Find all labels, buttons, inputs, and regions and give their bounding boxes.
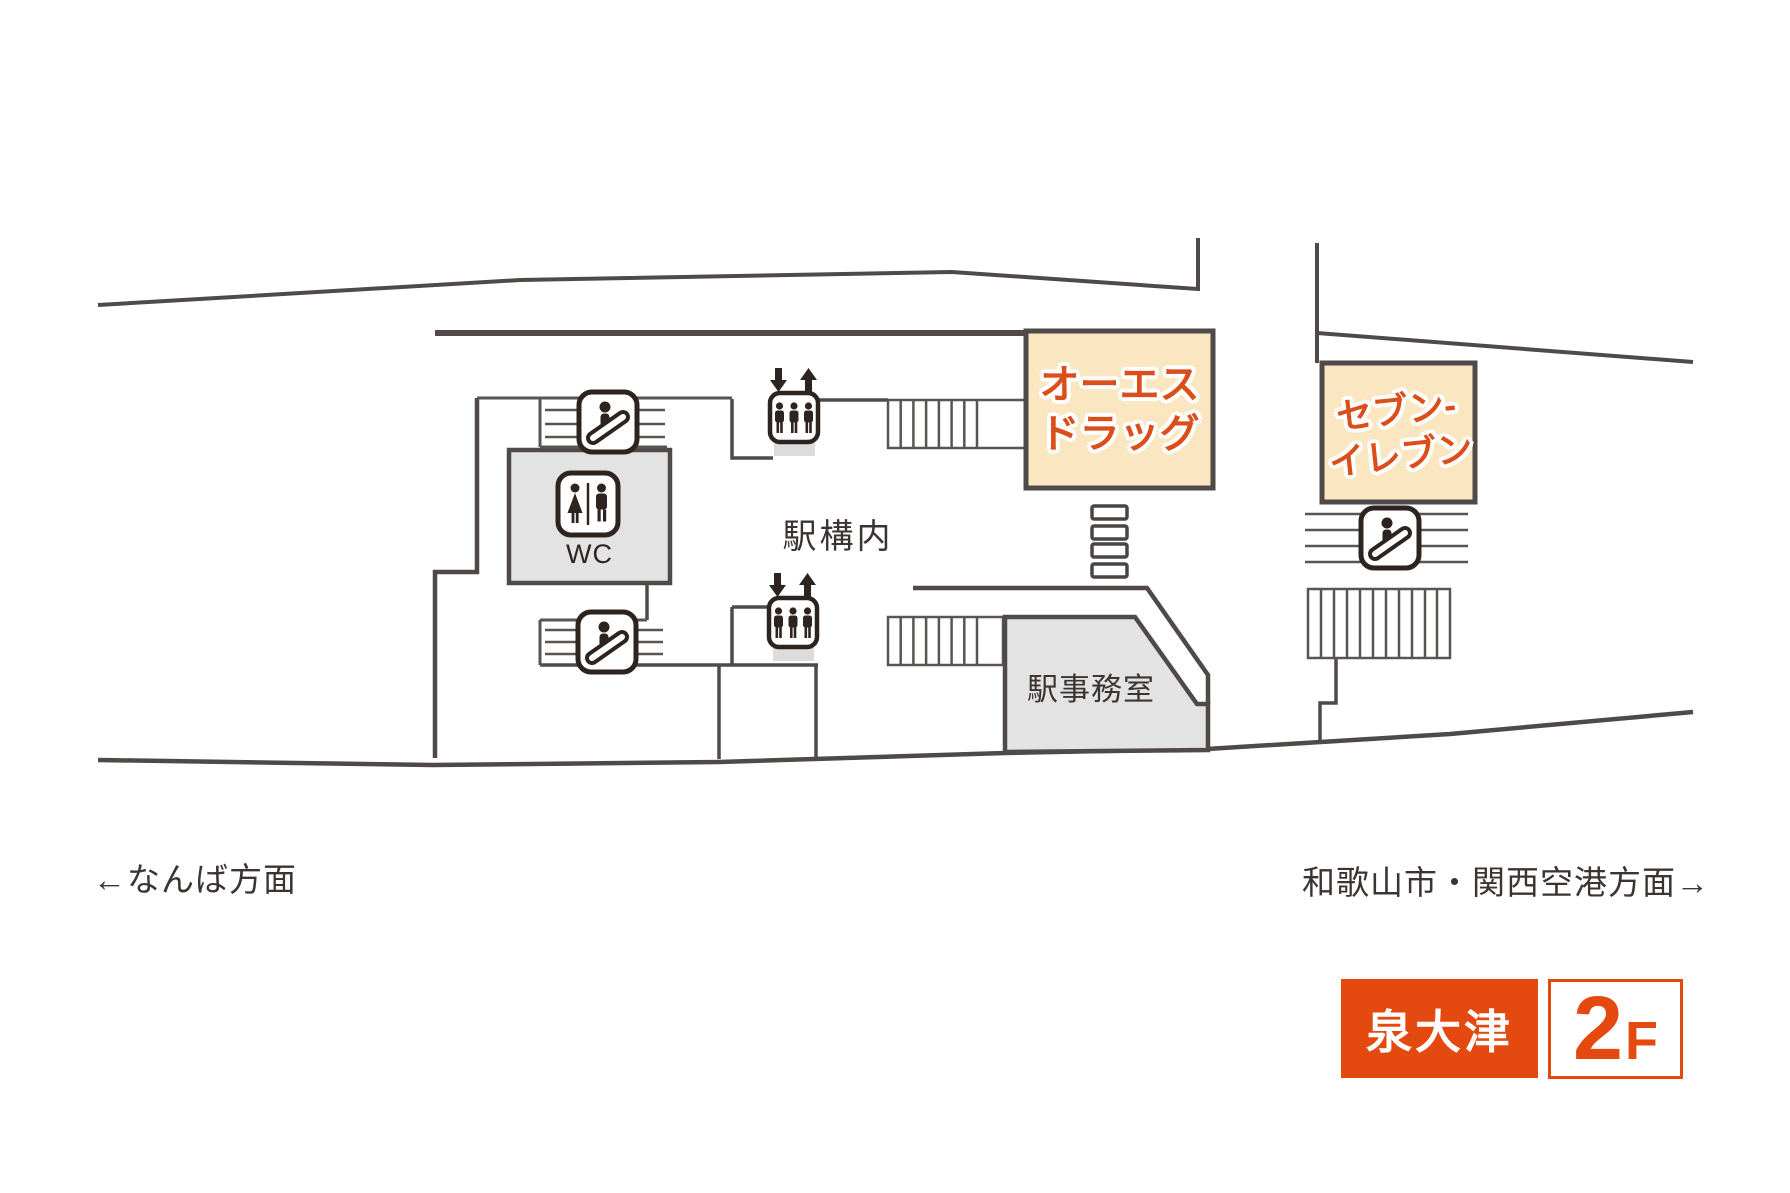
wall-elevator-top	[732, 399, 773, 458]
wall-elevator-bottom	[732, 607, 770, 665]
wall-shaft-to-bottom	[719, 665, 816, 759]
stairs-right	[1308, 589, 1450, 658]
escalator-top-left	[477, 392, 732, 452]
outer-wall-top-right-slope	[1317, 333, 1693, 362]
direction-label-namba: ←なんば方面	[93, 853, 297, 901]
station-name-badge: 泉大津	[1341, 979, 1538, 1078]
direction-label-wakayama-kansai-airport: 和歌山市・関西空港方面→	[1302, 856, 1710, 904]
wall-under-right-stairs	[1320, 658, 1336, 741]
floor-suffix: F	[1625, 994, 1658, 1088]
elevator-bottom	[769, 573, 817, 661]
outer-wall-top-left	[98, 238, 1198, 305]
stairs-bottom	[888, 617, 1003, 665]
outer-wall-bottom	[98, 712, 1693, 765]
shop-os-drug-line1: オーエス	[1040, 361, 1200, 410]
station-name: 泉大津	[1366, 996, 1513, 1062]
shop-label-os-drug: オーエス ドラッグ	[1026, 331, 1213, 488]
escalator-right	[1305, 508, 1468, 568]
floor-badge: 2 F	[1548, 979, 1683, 1079]
station-office-label: 駅事務室	[1003, 667, 1179, 705]
elevator-top	[770, 368, 818, 456]
stairs-top	[888, 400, 1026, 448]
concourse-label: 駅構内	[738, 512, 938, 554]
ticket-gates	[1092, 506, 1127, 577]
station-floor-map: オーエス ドラッグ セブン- イレブン 駅構内 駅事務室 WC ←なんば方面 和…	[0, 0, 1790, 1193]
shop-os-drug-line2: ドラッグ	[1040, 410, 1200, 459]
restroom-label: WC	[509, 538, 670, 570]
escalator-bottom-left	[540, 612, 663, 672]
floor-number: 2	[1573, 982, 1623, 1076]
inner-wall-left	[435, 398, 477, 758]
shop-label-seven-eleven: セブン- イレブン	[1315, 355, 1482, 509]
restroom-icon	[558, 473, 618, 535]
